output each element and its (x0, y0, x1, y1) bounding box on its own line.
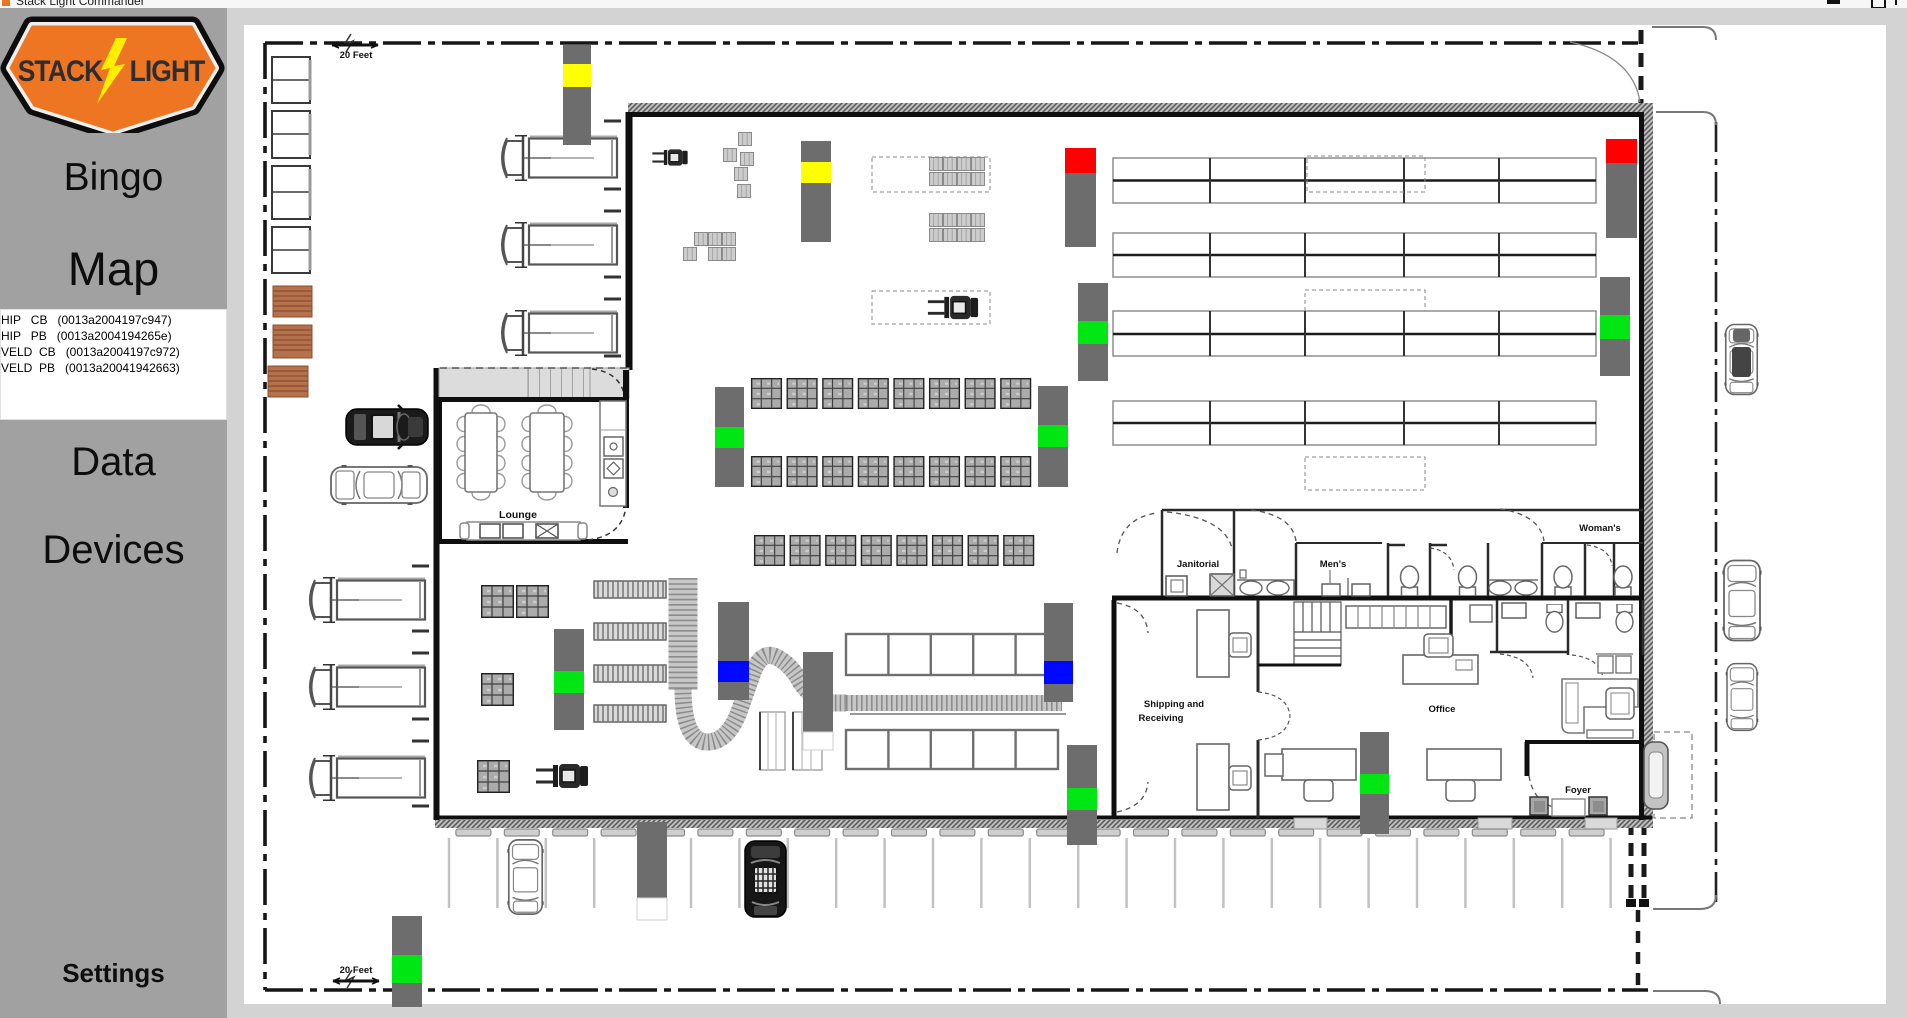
svg-text:Lounge: Lounge (499, 509, 537, 521)
svg-text:Office: Office (1429, 704, 1456, 715)
svg-text:Woman's: Woman's (1579, 523, 1621, 534)
svg-text:Men's: Men's (1320, 559, 1347, 570)
svg-text:20 Feet: 20 Feet (340, 965, 374, 976)
svg-text:20 Feet: 20 Feet (340, 50, 374, 61)
svg-text:Foyer: Foyer (1565, 785, 1591, 796)
svg-text:Shipping and: Shipping and (1144, 699, 1204, 710)
svg-text:Janitorial: Janitorial (1177, 559, 1219, 570)
svg-text:Receiving: Receiving (1139, 713, 1184, 724)
